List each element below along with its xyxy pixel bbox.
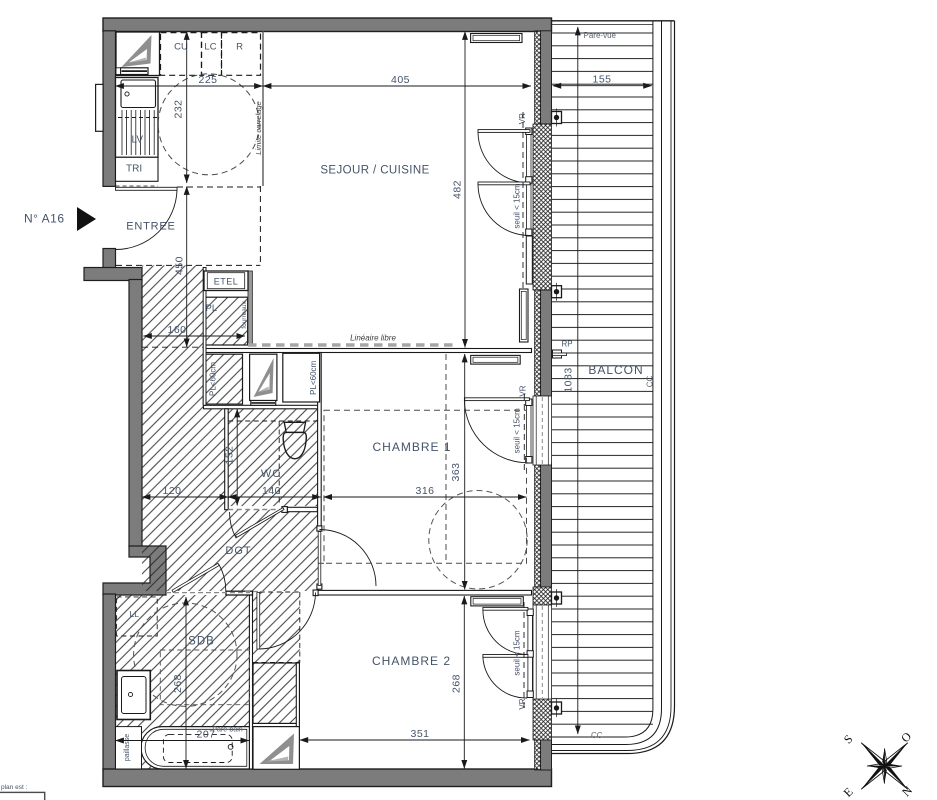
svg-text:405: 405 bbox=[391, 74, 410, 86]
svg-text:VR: VR bbox=[518, 385, 527, 396]
svg-text:DGT: DGT bbox=[225, 545, 251, 557]
svg-text:LL: LL bbox=[130, 609, 140, 619]
svg-text:LV: LV bbox=[132, 135, 144, 146]
svg-text:316: 316 bbox=[415, 485, 434, 497]
svg-text:ENTREE: ENTREE bbox=[126, 221, 175, 233]
svg-text:seuil < 15cm: seuil < 15cm bbox=[512, 630, 521, 675]
svg-text:160: 160 bbox=[167, 324, 186, 336]
svg-text:ETEL: ETEL bbox=[214, 277, 239, 287]
svg-text:LC: LC bbox=[204, 42, 216, 53]
svg-text:140: 140 bbox=[262, 485, 281, 497]
svg-text:363: 363 bbox=[450, 462, 462, 481]
svg-text:TRI: TRI bbox=[126, 164, 142, 175]
svg-text:BALCON: BALCON bbox=[588, 363, 643, 377]
svg-text:268: 268 bbox=[172, 674, 184, 693]
svg-text:PL<60cm: PL<60cm bbox=[309, 360, 318, 394]
svg-text:RP: RP bbox=[562, 340, 573, 349]
svg-text:268: 268 bbox=[451, 674, 463, 693]
svg-text:fourreaux: fourreaux bbox=[241, 301, 248, 329]
svg-text:Linéaire libre: Linéaire libre bbox=[350, 334, 396, 343]
svg-text:482: 482 bbox=[452, 180, 464, 199]
svg-text:N° A16: N° A16 bbox=[24, 212, 65, 226]
svg-text:CC: CC bbox=[646, 376, 655, 388]
svg-text:351: 351 bbox=[410, 728, 429, 740]
svg-text:CU: CU bbox=[174, 42, 188, 53]
svg-text:Pare-bain: Pare-bain bbox=[212, 727, 242, 734]
svg-text:Limite carrelage: Limite carrelage bbox=[254, 101, 263, 154]
svg-text:R: R bbox=[236, 42, 243, 53]
svg-text:Pare-vue: Pare-vue bbox=[584, 31, 617, 40]
svg-text:PL: PL bbox=[206, 303, 218, 314]
svg-text:152: 152 bbox=[224, 445, 236, 464]
svg-text:450: 450 bbox=[174, 256, 186, 275]
svg-text:WC: WC bbox=[261, 468, 281, 480]
svg-text:SDB: SDB bbox=[188, 636, 215, 648]
svg-text:1083: 1083 bbox=[563, 367, 575, 392]
svg-text:225: 225 bbox=[198, 74, 217, 86]
svg-text:120: 120 bbox=[162, 485, 181, 497]
svg-text:CHAMBRE 1: CHAMBRE 1 bbox=[372, 440, 451, 454]
svg-text:207: 207 bbox=[196, 729, 215, 741]
svg-text:CC: CC bbox=[591, 731, 603, 740]
svg-text:PL<60cm: PL<60cm bbox=[209, 362, 218, 396]
svg-text:155: 155 bbox=[592, 74, 611, 86]
svg-text:SEJOUR / CUISINE: SEJOUR / CUISINE bbox=[320, 165, 429, 177]
svg-text:VR: VR bbox=[518, 698, 527, 709]
svg-text:seuil < 15cm: seuil < 15cm bbox=[513, 408, 522, 453]
svg-text:232: 232 bbox=[173, 99, 185, 118]
svg-text:plan est :: plan est : bbox=[1, 784, 28, 791]
svg-text:paillasse: paillasse bbox=[124, 734, 131, 761]
svg-text:CHAMBRE 2: CHAMBRE 2 bbox=[372, 654, 451, 668]
svg-text:seuil < 15cm: seuil < 15cm bbox=[513, 183, 522, 228]
